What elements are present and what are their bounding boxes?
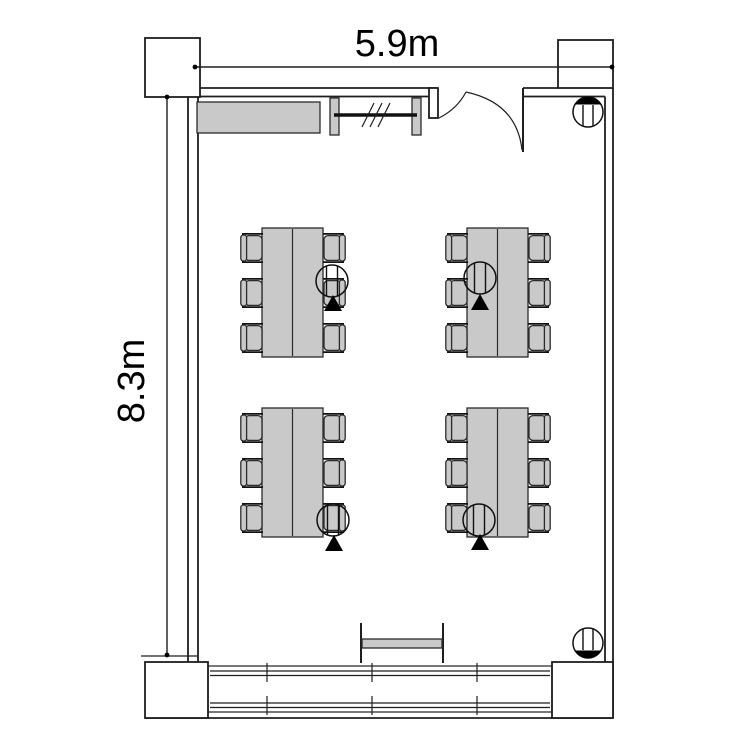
window-band bbox=[208, 666, 552, 712]
table-group-1 bbox=[241, 228, 345, 357]
wall-mounted-whiteboard bbox=[330, 98, 421, 135]
door-swing-arc-small bbox=[439, 92, 466, 118]
entrance-door bbox=[439, 88, 523, 152]
table-group-4 bbox=[446, 408, 550, 537]
counter-cabinet bbox=[197, 102, 320, 133]
dimension-depth: 8.3m bbox=[111, 95, 198, 658]
table-group-3 bbox=[241, 408, 345, 537]
dimension-width: 5.9m bbox=[193, 23, 615, 69]
column-utility-symbol-bottom-right bbox=[573, 628, 603, 658]
wall-pier-bottom-right bbox=[552, 662, 613, 718]
floor-plan-drawing: 5.9m 8.3m bbox=[0, 0, 750, 750]
console-table bbox=[361, 623, 443, 663]
depth-dimension-label: 8.3m bbox=[111, 339, 153, 423]
wall-pier-top-left bbox=[145, 38, 200, 97]
table-group-2 bbox=[446, 228, 550, 357]
wall-pier-top-right bbox=[558, 40, 613, 88]
door-jamb bbox=[429, 88, 438, 118]
floor-plan-canvas: 5.9m 8.3m bbox=[0, 0, 750, 750]
wall-pier-bottom-left bbox=[145, 662, 208, 718]
console-table-top bbox=[362, 639, 442, 648]
window-rails bbox=[210, 671, 550, 708]
walls bbox=[145, 38, 613, 718]
direction-marker-3 bbox=[325, 535, 343, 551]
window-wall bbox=[208, 663, 552, 715]
width-dimension-label: 5.9m bbox=[355, 23, 439, 65]
door-swing-arc-large bbox=[466, 92, 522, 150]
column-utility-symbol-top-right bbox=[573, 97, 603, 127]
